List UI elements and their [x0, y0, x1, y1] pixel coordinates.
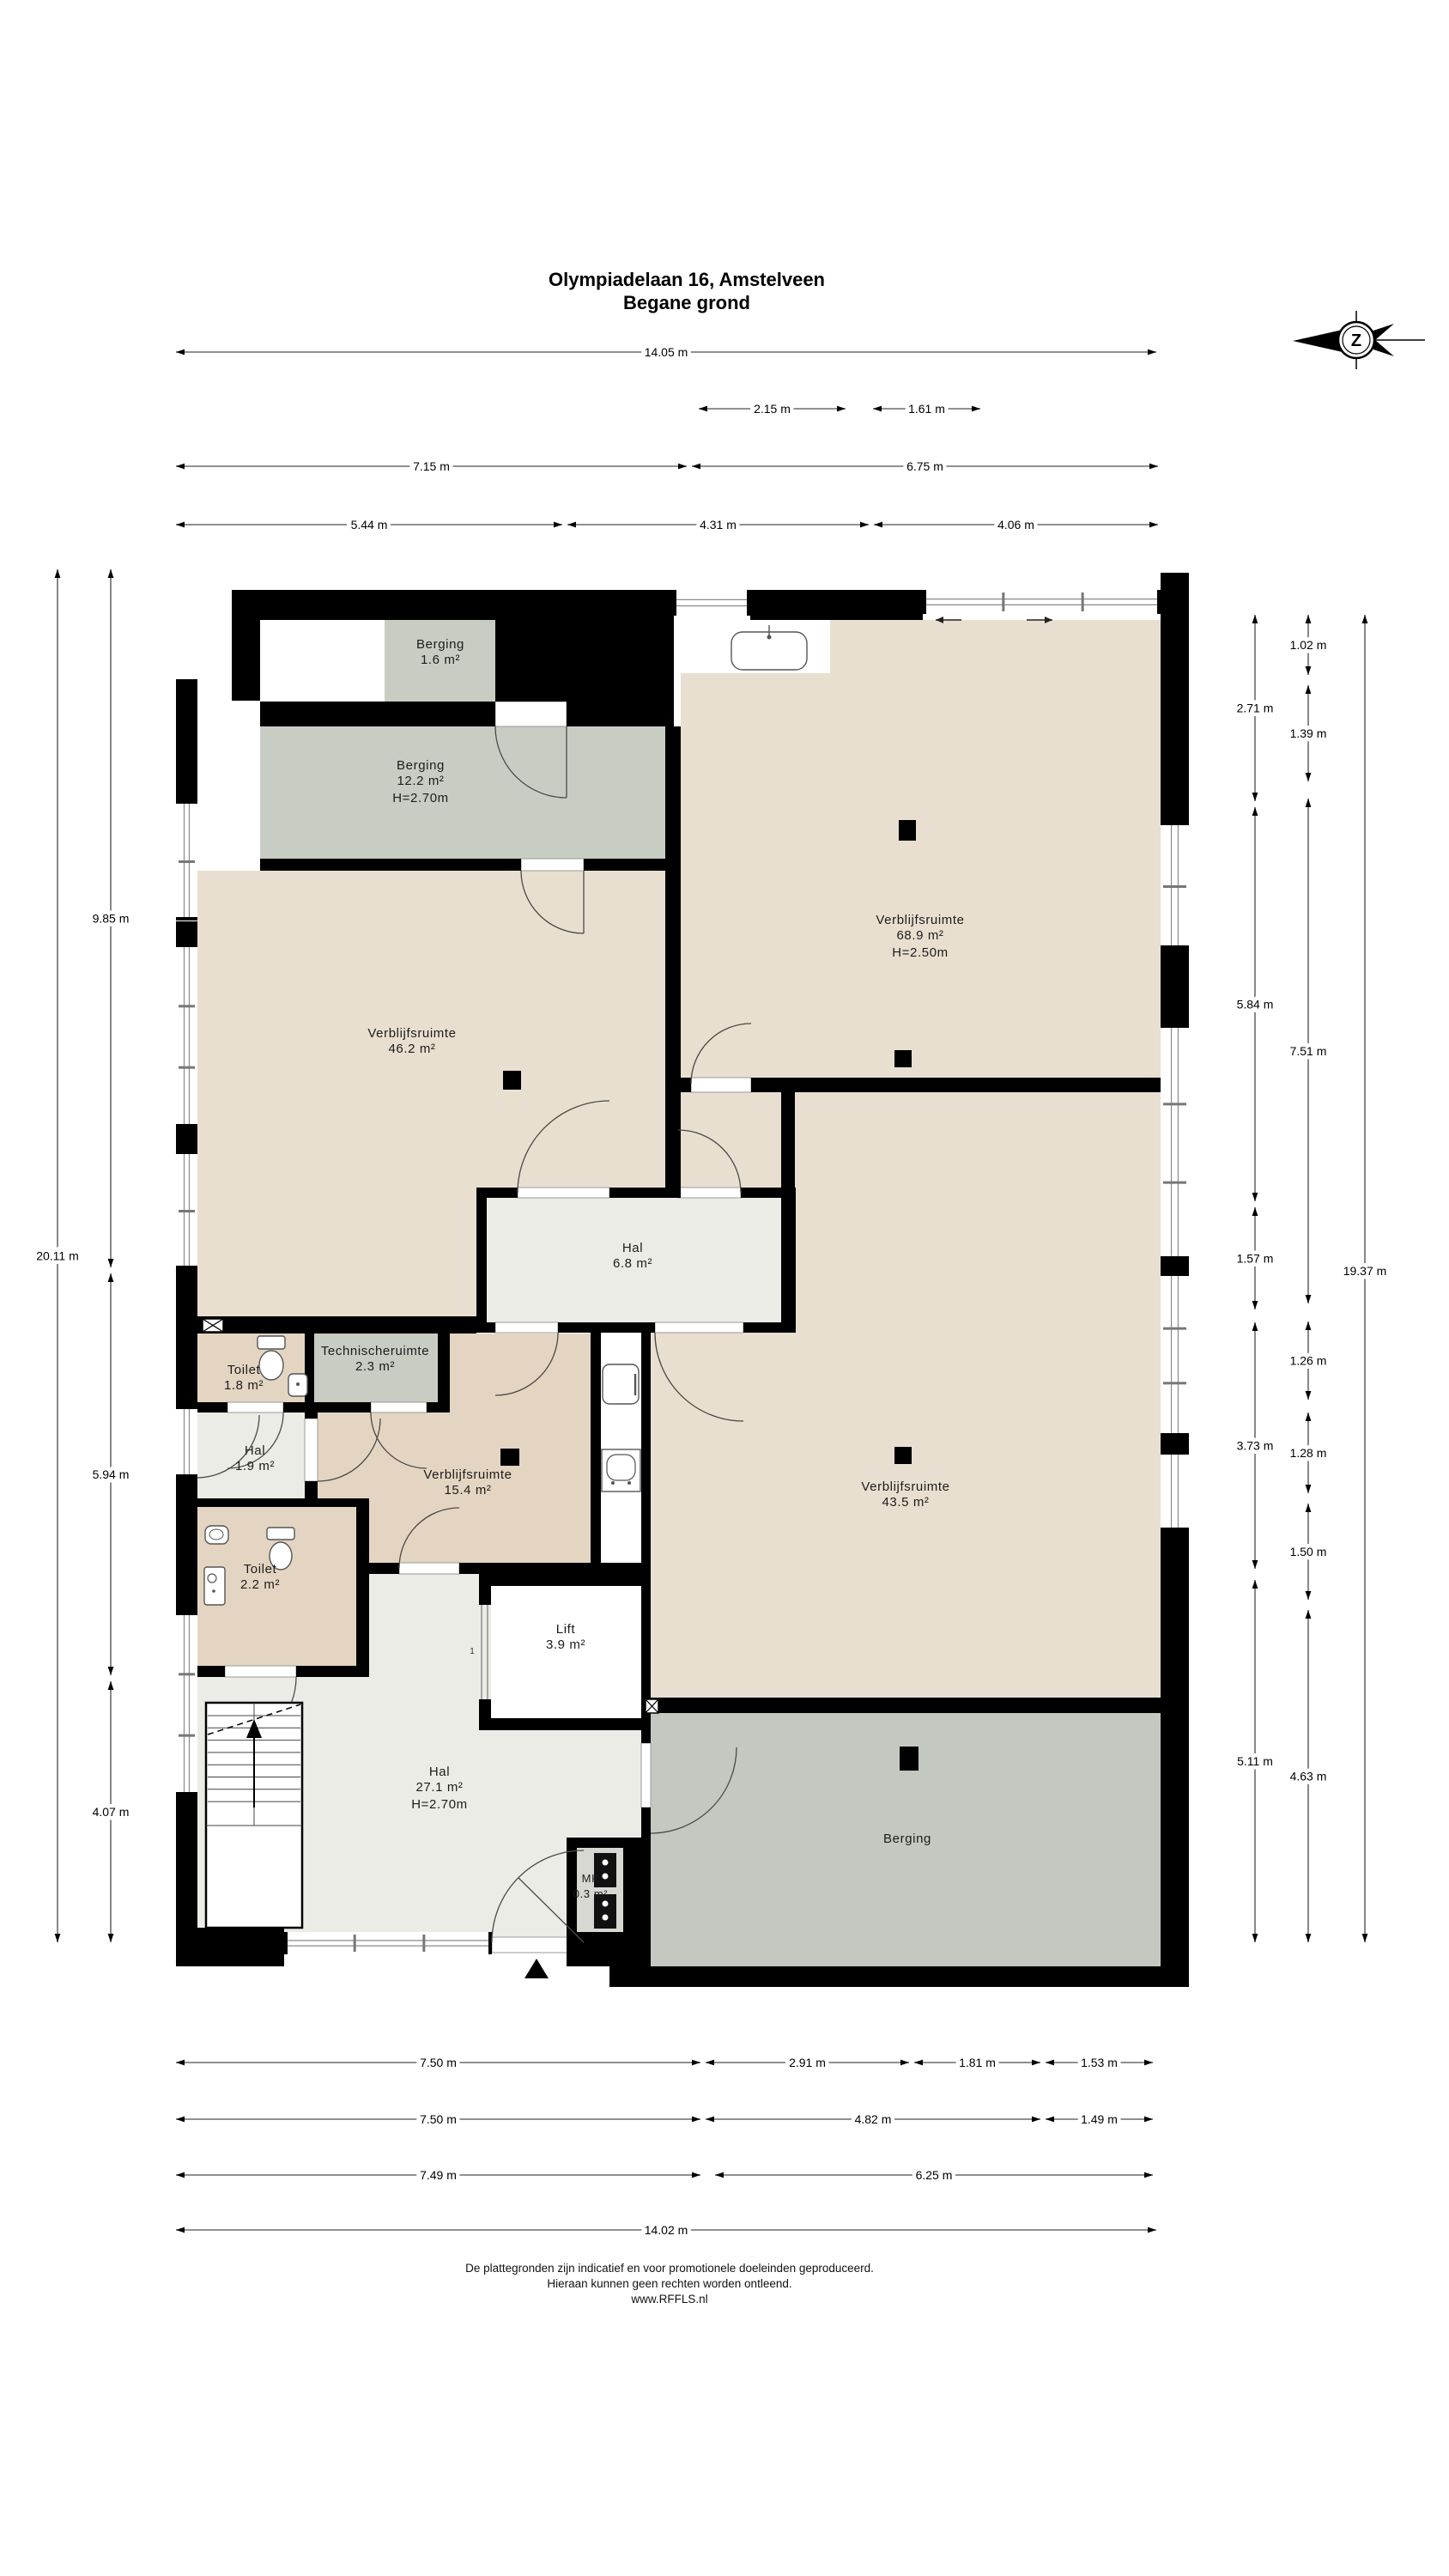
entrance-arrow-icon [524, 1959, 549, 1978]
dimension-label: 5.44 m [351, 518, 388, 532]
dimension-label: 1.28 m [1290, 1446, 1327, 1460]
dimension-label: 1.26 m [1290, 1354, 1327, 1368]
dimension-label: 9.85 m [93, 912, 130, 926]
disclaimer-line-1: De plattegronden zijn indicatief en voor… [0, 2261, 1339, 2276]
dimension-label: 1.61 m [908, 402, 945, 416]
dimension-label: 6.75 m [906, 459, 943, 473]
dimension-label: 7.50 m [420, 2112, 457, 2126]
floorplan-sheet: Olympiadelaan 16, Amstelveen Begane gron… [0, 0, 1449, 2576]
dimension-label: 20.11 m [36, 1249, 79, 1263]
dimension-label: 14.05 m [645, 345, 688, 359]
room-label-toilet-2-2: Toilet2.2 m² [240, 1562, 280, 1592]
dimension-label: 1.81 m [959, 2056, 996, 2069]
dimension-label: 4.06 m [997, 518, 1034, 532]
floorplan-svg: 1Berging1.6 m²Berging12.2 m²H=2.70mVerbl… [0, 0, 1449, 2576]
dimension-label: 1.50 m [1290, 1545, 1327, 1558]
svg-text:1: 1 [470, 1647, 475, 1656]
room-label-toilet-1-8: Toilet1.8 m² [224, 1363, 264, 1393]
dimension-label: 19.37 m [1343, 1264, 1387, 1278]
dimension-label: 3.73 m [1237, 1439, 1274, 1453]
dimension-label: 4.63 m [1290, 1770, 1327, 1783]
dimension-label: 2.91 m [789, 2056, 826, 2069]
dimension-label: 1.49 m [1081, 2112, 1118, 2126]
dimension-label: 2.71 m [1237, 702, 1274, 715]
dimension-label: 6.25 m [916, 2168, 953, 2182]
dimension-label: 5.94 m [93, 1467, 130, 1481]
room-label-berging-1-6: Berging1.6 m² [416, 637, 464, 667]
dimension-label: 1.53 m [1081, 2056, 1118, 2069]
dimension-label: 5.11 m [1237, 1754, 1273, 1768]
dimension-label: 4.82 m [855, 2112, 892, 2126]
disclaimer-line-3: www.RFFLS.nl [0, 2292, 1339, 2307]
room-label-berging-rechts: Berging [883, 1832, 931, 1846]
stairs [206, 1703, 302, 1928]
dimension-label: 4.31 m [700, 518, 737, 532]
dimension-label: 7.15 m [413, 459, 450, 473]
dimension-label: 1.57 m [1237, 1252, 1274, 1266]
dimension-label: 1.02 m [1290, 638, 1327, 652]
dimension-label: 2.15 m [754, 402, 791, 416]
dimension-label: 7.50 m [420, 2056, 457, 2069]
room-label-berging-12-2: Berging12.2 m²H=2.70m [392, 758, 448, 805]
dimension-label: 7.49 m [420, 2168, 457, 2182]
dimension-label: 14.02 m [645, 2223, 688, 2237]
dimension-label: 4.07 m [93, 1805, 130, 1819]
dimension-label: 1.39 m [1290, 726, 1327, 740]
disclaimer-line-2: Hieraan kunnen geen rechten worden ontle… [0, 2276, 1339, 2292]
dimension-label: 5.84 m [1237, 998, 1274, 1012]
disclaimer: De plattegronden zijn indicatief en voor… [0, 2261, 1339, 2307]
dimension-label: 7.51 m [1290, 1044, 1327, 1058]
